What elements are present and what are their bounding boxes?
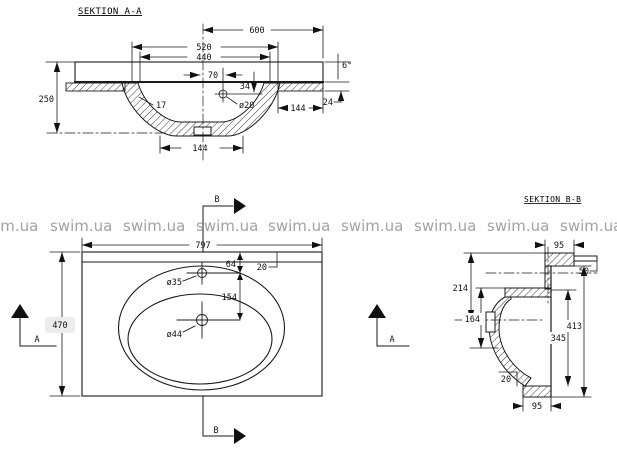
plan-dim-64: 64 [226,260,236,270]
cut-labels: A A B B [34,195,394,436]
aa-dim-144-right: 144 [290,104,305,114]
bb-drain-fitting [486,312,495,332]
bb-dim-95-top: 95 [554,241,564,251]
bb-bowl-wall [489,297,531,386]
plan-dimension-texts: 797 470 64 154 20 ø35 ø44 [52,241,267,340]
plan-dim-20: 20 [257,263,267,273]
aa-drain-fitting [194,127,211,135]
aa-body-outline [66,62,323,136]
aa-dim-520: 520 [196,43,211,53]
washbasin-drawing: SEKTION A-A [0,0,617,454]
cut-label-b-bottom: B [213,426,218,436]
plan-basin-outer-rim [119,266,285,390]
cut-arrow-b-bottom-icon [234,428,246,444]
aa-dim-17: 17 [156,101,166,111]
aa-dim-70: 70 [208,71,218,81]
cut-label-a-right: A [389,335,394,345]
plan-dim-154: 154 [222,293,237,303]
bb-dim-214: 214 [453,284,468,294]
aa-dim-24: 24 [323,98,333,108]
plan-view: 797 470 64 154 20 ø35 ø44 [11,195,409,444]
bb-dim-345: 345 [551,334,566,344]
cut-arrow-a-right-icon [368,304,386,318]
plan-drain-label: ø44 [167,330,182,340]
cut-arrow-a-left-icon [11,304,29,318]
technical-drawing-page: SEKTION A-A [0,0,617,454]
bb-dim-20: 20 [501,375,511,385]
cut-label-b-top: B [214,195,219,205]
aa-dim-440: 440 [196,53,211,63]
section-aa-title: SEKTION A-A [78,7,142,17]
plan-basin-inner-rim [128,294,272,384]
cut-arrow-b-top-icon [234,198,246,214]
cut-label-a-left: A [34,335,39,345]
aa-dim-angle: 6° [342,61,352,71]
plan-faucet-label: ø35 [167,278,182,288]
bb-dim-50: 50 [579,267,589,277]
bb-dim-95-bottom: 95 [532,402,542,412]
bb-dimension-texts: 95 50 214 164 345 413 20 95 [453,241,589,412]
section-bb-title: SEKTION B-B [524,195,581,204]
bb-dim-413: 413 [567,322,582,332]
aa-hole-label: ø20 [239,101,254,111]
aa-dim-144-bottom: 144 [192,144,207,154]
plan-dim-470: 470 [52,321,67,331]
section-aa: SEKTION A-A [39,7,353,162]
aa-dim-250: 250 [39,95,54,105]
aa-dim-34: 34 [240,82,250,92]
section-bb: SEKTION B-B [453,195,597,412]
aa-dim-600: 600 [249,26,264,36]
bb-dim-164: 164 [465,315,480,325]
